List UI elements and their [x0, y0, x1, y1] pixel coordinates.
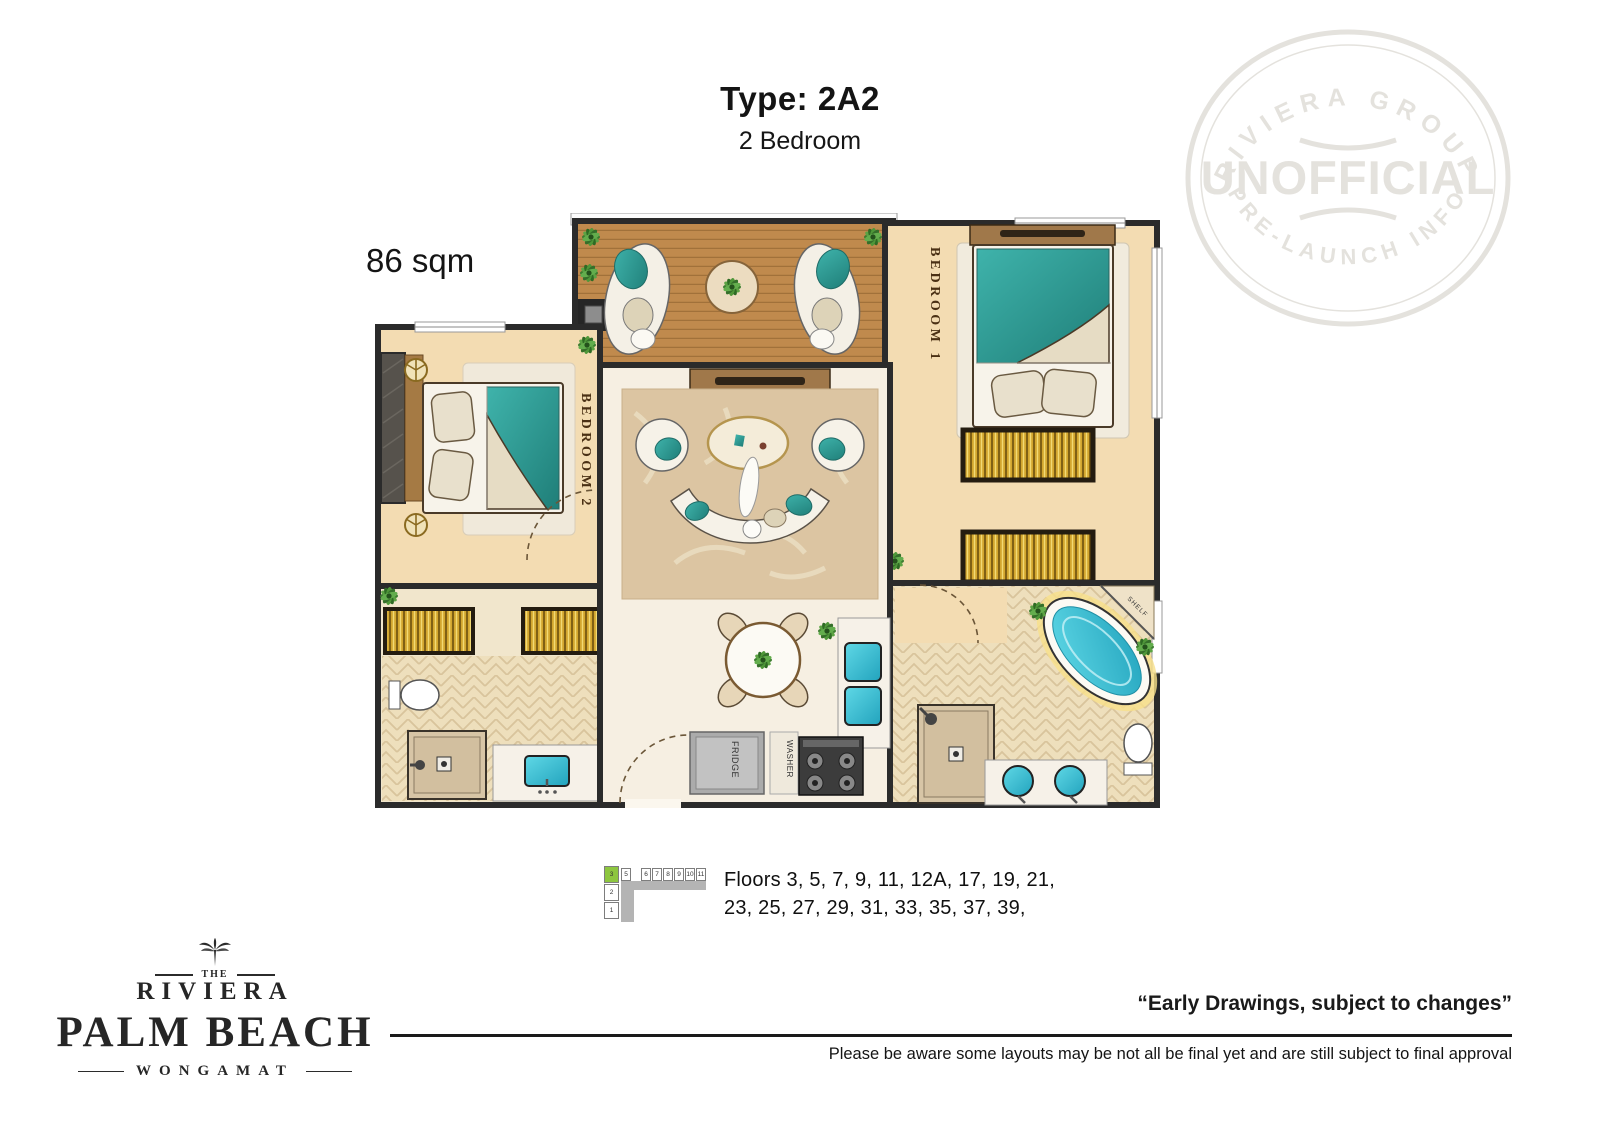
- floor-cell: 5: [621, 868, 631, 881]
- bedroom2-bed: [423, 383, 563, 513]
- floor-cell: 2: [604, 884, 619, 901]
- svg-text:PRE-LAUNCH INFO: PRE-LAUNCH INFO: [1223, 182, 1473, 269]
- armchair: [636, 419, 688, 471]
- floor-cell: 8: [663, 868, 673, 881]
- floor-cell: 10: [685, 868, 695, 881]
- armchair: [812, 419, 864, 471]
- fridge-label: FRIDGE: [730, 741, 740, 778]
- ornament-line: [237, 974, 275, 976]
- entry-door-gap: [625, 799, 681, 808]
- palm-ornament-icon: [194, 938, 236, 968]
- bedroom-1: BEDROOM 1: [885, 218, 1162, 588]
- page-title: Type: 2A2: [560, 80, 1040, 118]
- floor-cell: 11: [696, 868, 706, 881]
- stamp-lower-arc: [1300, 210, 1396, 218]
- bedroom1-bed: [973, 245, 1113, 427]
- footer-divider: [390, 1034, 1512, 1037]
- floor-plan: BEDROOM 1 SHELF: [375, 213, 1180, 808]
- stamp-arc-top-text: RIVIERA GROUP: [1209, 83, 1487, 187]
- bedroom1-label: BEDROOM 1: [927, 247, 942, 363]
- kitchen-sink: [845, 643, 881, 681]
- shower: [408, 731, 486, 799]
- floor-cell: 6: [641, 868, 651, 881]
- footer-quote: “Early Drawings, subject to changes”: [1137, 992, 1512, 1016]
- corridor-floor: [895, 588, 1007, 643]
- kitchen-counter: [838, 618, 890, 748]
- bedroom-2: BEDROOM 2: [378, 322, 600, 589]
- wardrobe: [385, 609, 473, 653]
- living-room: FRIDGE WASHER: [600, 365, 890, 808]
- footer-disclaimer: Please be aware some layouts may be not …: [829, 1045, 1512, 1064]
- brand-logo: THE RIVIERA PALM BEACH WONGAMAT: [62, 938, 368, 1080]
- stamp-upper-arc: [1300, 140, 1396, 148]
- balcony: [571, 213, 897, 371]
- washer-label: WASHER: [785, 740, 794, 778]
- dining-set: [712, 607, 813, 712]
- tv-icon: [715, 377, 805, 385]
- fridge: FRIDGE: [690, 732, 764, 794]
- sink: [1055, 766, 1085, 796]
- stamp-inner-ring: [1201, 45, 1495, 311]
- stamp-center-text: UNOFFICIAL: [1201, 151, 1496, 204]
- logo-riviera: RIVIERA: [136, 978, 293, 1006]
- stove: [799, 737, 863, 795]
- logo-location: WONGAMAT: [136, 1063, 294, 1080]
- bedside-lamp: [405, 514, 427, 536]
- bedroom2-closet: [381, 353, 405, 503]
- ornament-line: [155, 974, 193, 976]
- floor-indicator: 3 2 1 5 6 7 8 9 10 11 Floors 3, 5, 7, 9,…: [604, 866, 1055, 922]
- toilet: [1124, 724, 1152, 775]
- floors-list: Floors 3, 5, 7, 9, 11, 12A, 17, 19, 21, …: [724, 866, 1055, 922]
- floorplan-page: Type: 2A2 2 Bedroom 86 sqm RIVIERA GROUP…: [0, 0, 1600, 1124]
- stamp-outer-ring: [1188, 32, 1508, 324]
- logo-name: PALM BEACH: [56, 1008, 373, 1057]
- floors-line1: Floors 3, 5, 7, 9, 11, 12A, 17, 19, 21,: [724, 866, 1055, 894]
- wardrobe: [963, 532, 1093, 582]
- bedside-lamp: [405, 359, 427, 381]
- stamp-arc-bottom-text: PRE-LAUNCH INFO: [1223, 182, 1473, 269]
- stack-diagram: 3 2 1 5 6 7 8 9 10 11: [604, 866, 708, 922]
- wardrobe: [963, 430, 1093, 480]
- floors-line2: 23, 25, 27, 29, 31, 33, 35, 37, 39,: [724, 894, 1055, 922]
- svg-text:RIVIERA GROUP: RIVIERA GROUP: [1209, 83, 1487, 187]
- unofficial-stamp: RIVIERA GROUP UNOFFICIAL PRE-LAUNCH INFO: [1176, 20, 1520, 336]
- wardrobe: [523, 609, 605, 653]
- ornament-line: [306, 1071, 352, 1073]
- sink: [1003, 766, 1033, 796]
- floor-cell: 9: [674, 868, 684, 881]
- floor-cell: 1: [604, 902, 619, 919]
- master-bathroom: SHELF: [890, 569, 1179, 805]
- highlighted-floor-cell: 3: [604, 866, 619, 883]
- ornament-line: [78, 1071, 124, 1073]
- toilet: [389, 680, 439, 710]
- kitchen-sink: [845, 687, 881, 725]
- floor-cell: 7: [652, 868, 662, 881]
- page-subtitle: 2 Bedroom: [560, 127, 1040, 156]
- bathroom-2: [378, 586, 610, 805]
- shower: [918, 705, 994, 803]
